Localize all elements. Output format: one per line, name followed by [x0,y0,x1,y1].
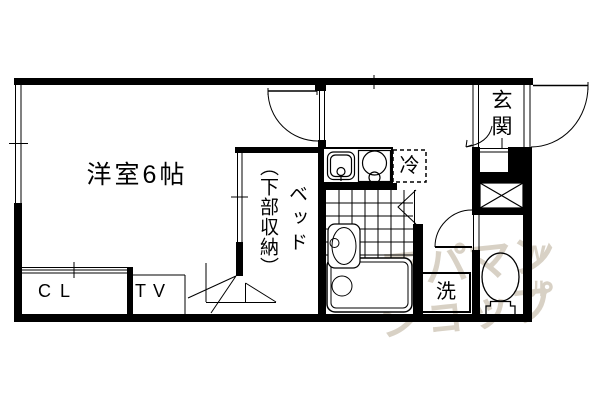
room-door-jamb [320,91,325,140]
wall-kitchen-bath [318,183,397,190]
bath-folding-door [398,190,416,224]
bed-window [231,153,248,242]
floor-plan: アパマン ショップ W ル [0,0,600,400]
wall-bed-left-lower [236,242,243,276]
toilet-door [435,210,472,247]
washer-label: 洗 [422,273,470,312]
wall-above-toilet [472,208,523,215]
room-label: 洋室6帖 [75,162,199,188]
toilet [482,253,519,314]
wall-top [14,78,533,85]
wall-toilet-left [472,250,480,314]
closet-label: CL [38,282,79,301]
wall-closet-right [127,267,133,314]
wall-entry-left [472,147,480,215]
wall-bottom [14,314,532,322]
toilet-door-jamb [474,215,480,250]
bed-storage-label: （下部収納） [257,157,277,277]
bath-sink [328,224,360,268]
wall-left-lower [14,203,22,314]
wall-right [523,147,532,322]
kitchen-counter [323,148,392,183]
wall-bed-top [235,147,326,153]
left-window [9,85,28,203]
closet-sliding-door [22,262,127,278]
shoe-cabinet [480,183,523,208]
room-door [268,88,318,141]
wall-entry-step [480,172,508,183]
entrance-label: 玄関 [489,89,511,141]
entrance-door [531,82,588,147]
bed-label: ベッド [286,184,306,256]
wall-entry-right-stub [508,147,523,183]
entry-notch-lines [480,149,508,153]
fridge-label: 冷 [393,150,426,182]
tv-label: TV [135,282,172,301]
